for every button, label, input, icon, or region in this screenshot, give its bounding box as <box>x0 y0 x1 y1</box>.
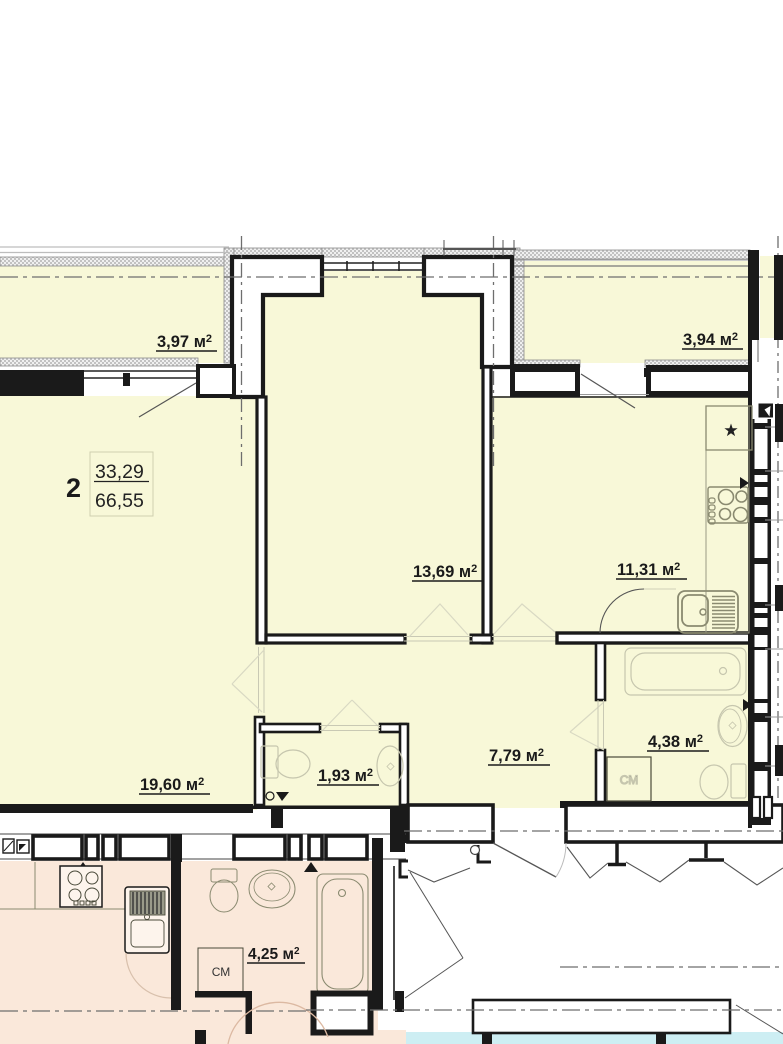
svg-text:3,94 м2: 3,94 м2 <box>683 331 738 349</box>
svg-text:3,97 м2: 3,97 м2 <box>157 333 212 351</box>
svg-text:7,79 м2: 7,79 м2 <box>489 747 544 765</box>
svg-text:66,55: 66,55 <box>95 490 144 512</box>
svg-text:2: 2 <box>66 473 81 503</box>
svg-text:19,60 м2: 19,60 м2 <box>140 776 204 794</box>
svg-text:13,69 м2: 13,69 м2 <box>413 563 477 581</box>
svg-text:4,25 м2: 4,25 м2 <box>248 946 300 963</box>
svg-text:11,31 м2: 11,31 м2 <box>617 561 680 579</box>
svg-text:33,29: 33,29 <box>95 461 144 483</box>
svg-text:1,93 м2: 1,93 м2 <box>318 767 373 785</box>
svg-text:СМ: СМ <box>620 773 639 787</box>
svg-text:4,38 м2: 4,38 м2 <box>648 733 703 751</box>
svg-text:СМ: СМ <box>212 965 231 979</box>
